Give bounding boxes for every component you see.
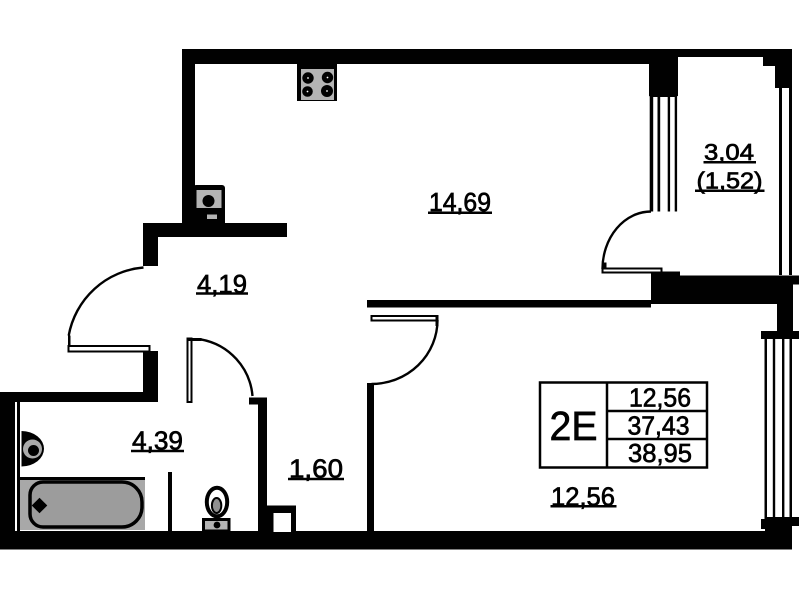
svg-text:37,43: 37,43 — [628, 411, 690, 441]
svg-text:2E: 2E — [550, 403, 598, 449]
svg-text:38,95: 38,95 — [628, 438, 692, 468]
svg-text:12,56: 12,56 — [629, 383, 691, 413]
